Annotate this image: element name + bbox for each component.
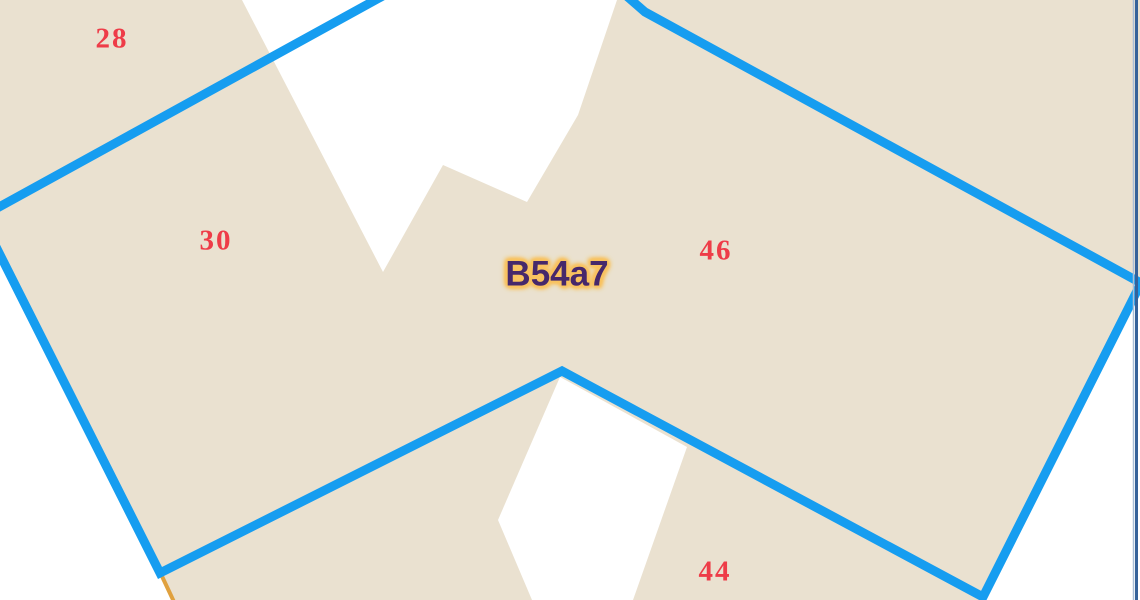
map-canvas[interactable] [0, 0, 1140, 600]
map-viewport[interactable]: B54a7 28304644 [0, 0, 1140, 600]
